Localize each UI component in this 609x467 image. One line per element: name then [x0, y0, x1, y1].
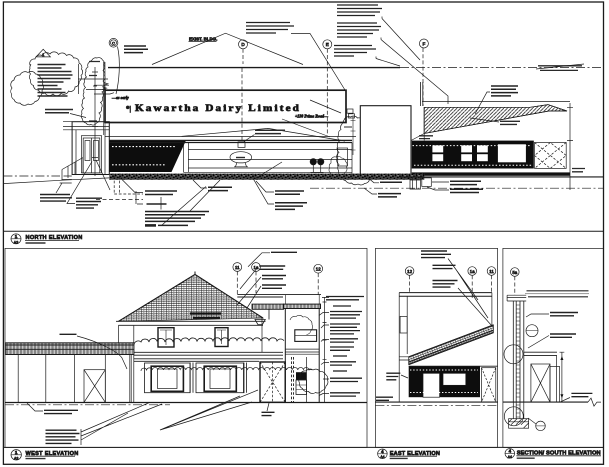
- svg-text:4: 4: [509, 449, 512, 454]
- svg-text:A4: A4: [508, 455, 512, 459]
- svg-text:C: C: [112, 41, 115, 46]
- svg-text:*|: *|: [126, 105, 132, 113]
- svg-text:Kawartha Dairy Limited: Kawartha Dairy Limited: [135, 103, 301, 113]
- svg-text:A3: A3: [14, 240, 18, 244]
- svg-text:1: 1: [15, 234, 18, 239]
- svg-text:—as early: —as early: [111, 95, 129, 100]
- svg-text:12: 12: [407, 269, 412, 274]
- svg-text:F: F: [422, 41, 425, 46]
- svg-text:D: D: [241, 42, 245, 47]
- svg-text:1a: 1a: [470, 269, 475, 274]
- svg-text:+130 Prime Road—: +130 Prime Road—: [295, 114, 328, 119]
- svg-text:1: 1: [15, 450, 18, 455]
- svg-text:A4: A4: [380, 455, 384, 459]
- svg-text:E: E: [326, 42, 329, 47]
- svg-text:A3: A3: [14, 457, 18, 461]
- svg-text:11: 11: [489, 269, 494, 274]
- svg-text:11: 11: [235, 265, 240, 270]
- svg-text:EXIST. BLDG.: EXIST. BLDG.: [189, 37, 217, 42]
- svg-text:12: 12: [316, 267, 321, 272]
- svg-text:4: 4: [381, 449, 384, 454]
- svg-text:5a: 5a: [512, 270, 517, 275]
